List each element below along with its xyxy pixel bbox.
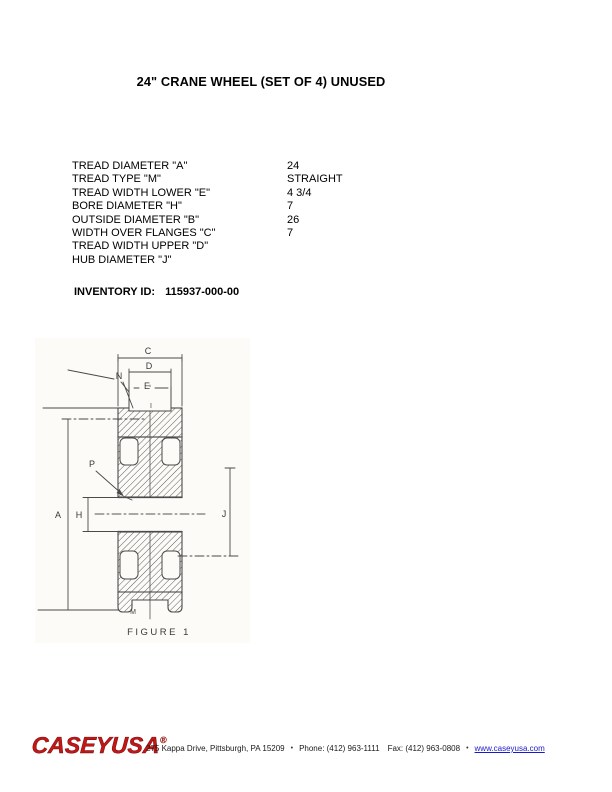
- inventory-id: INVENTORY ID:115937-000-00: [74, 286, 239, 298]
- spec-value: 7: [287, 227, 293, 240]
- dim-label-a: A: [55, 510, 61, 520]
- dim-label-c: C: [145, 346, 152, 356]
- website-link[interactable]: www.caseyusa.com: [475, 744, 545, 753]
- spec-row-bore-diameter: BORE DIAMETER "H"7: [72, 200, 343, 213]
- spec-label: TREAD WIDTH LOWER "E": [72, 187, 287, 200]
- footer-address: 275 Kappa Drive, Pittsburgh, PA 15209: [146, 744, 285, 753]
- dim-label-n: N: [116, 371, 123, 381]
- crane-wheel-cross-section: C D E N I P A H J M FIGURE 1: [35, 338, 250, 643]
- bore-band: [119, 498, 181, 531]
- spec-label: TREAD DIAMETER "A": [72, 160, 287, 173]
- spec-row-tread-diameter: TREAD DIAMETER "A"24: [72, 160, 343, 173]
- spec-label: TREAD TYPE "M": [72, 173, 287, 186]
- figure-caption: FIGURE 1: [127, 627, 191, 638]
- dim-label-p: P: [89, 459, 95, 469]
- page-title: 24" CRANE WHEEL (SET OF 4) UNUSED: [0, 74, 522, 89]
- spec-label: HUB DIAMETER "J": [72, 254, 287, 267]
- spec-row-outside-diameter: OUTSIDE DIAMETER "B"26: [72, 214, 343, 227]
- dim-label-i: I: [150, 403, 152, 410]
- spec-label: BORE DIAMETER "H": [72, 200, 287, 213]
- spec-row-tread-width-upper: TREAD WIDTH UPPER "D": [72, 240, 343, 253]
- footer-bullet: •: [291, 745, 293, 752]
- dim-label-j: J: [222, 509, 227, 519]
- spec-label: OUTSIDE DIAMETER "B": [72, 214, 287, 227]
- footer-phone: Phone: (412) 963-1111: [299, 744, 380, 753]
- inventory-id-label: INVENTORY ID:: [74, 286, 155, 298]
- spec-label: TREAD WIDTH UPPER "D": [72, 240, 287, 253]
- footer-bullet: •: [466, 745, 468, 752]
- spec-row-hub-diameter: HUB DIAMETER "J": [72, 254, 343, 267]
- footer-contact-line: 275 Kappa Drive, Pittsburgh, PA 15209•Ph…: [146, 744, 545, 753]
- dim-label-e: E: [144, 381, 150, 391]
- dim-label-d: D: [146, 361, 153, 371]
- spec-list: TREAD DIAMETER "A"24 TREAD TYPE "M"STRAI…: [72, 160, 343, 267]
- spec-value: 26: [287, 214, 299, 227]
- figure-1-drawing: C D E N I P A H J M FIGURE 1: [35, 338, 250, 643]
- spec-value: 7: [287, 200, 293, 213]
- inventory-id-value: 115937-000-00: [165, 286, 239, 298]
- caseyusa-logo: CASEYUSA®: [31, 727, 168, 758]
- spec-row-width-over-flanges: WIDTH OVER FLANGES "C"7: [72, 227, 343, 240]
- spec-value: STRAIGHT: [287, 173, 343, 186]
- dim-label-h: H: [76, 510, 83, 520]
- spec-row-tread-width-lower: TREAD WIDTH LOWER "E"4 3/4: [72, 187, 343, 200]
- spec-value: 4 3/4: [287, 187, 311, 200]
- document-page: 24" CRANE WHEEL (SET OF 4) UNUSED TREAD …: [0, 0, 612, 792]
- caseyusa-logo-text: CASEYUSA: [31, 732, 161, 758]
- dim-label-m: M: [130, 609, 136, 616]
- footer-fax: Fax: (412) 963-0808: [388, 744, 461, 753]
- spec-label: WIDTH OVER FLANGES "C": [72, 227, 287, 240]
- spec-row-tread-type: TREAD TYPE "M"STRAIGHT: [72, 173, 343, 186]
- spec-value: 24: [287, 160, 299, 173]
